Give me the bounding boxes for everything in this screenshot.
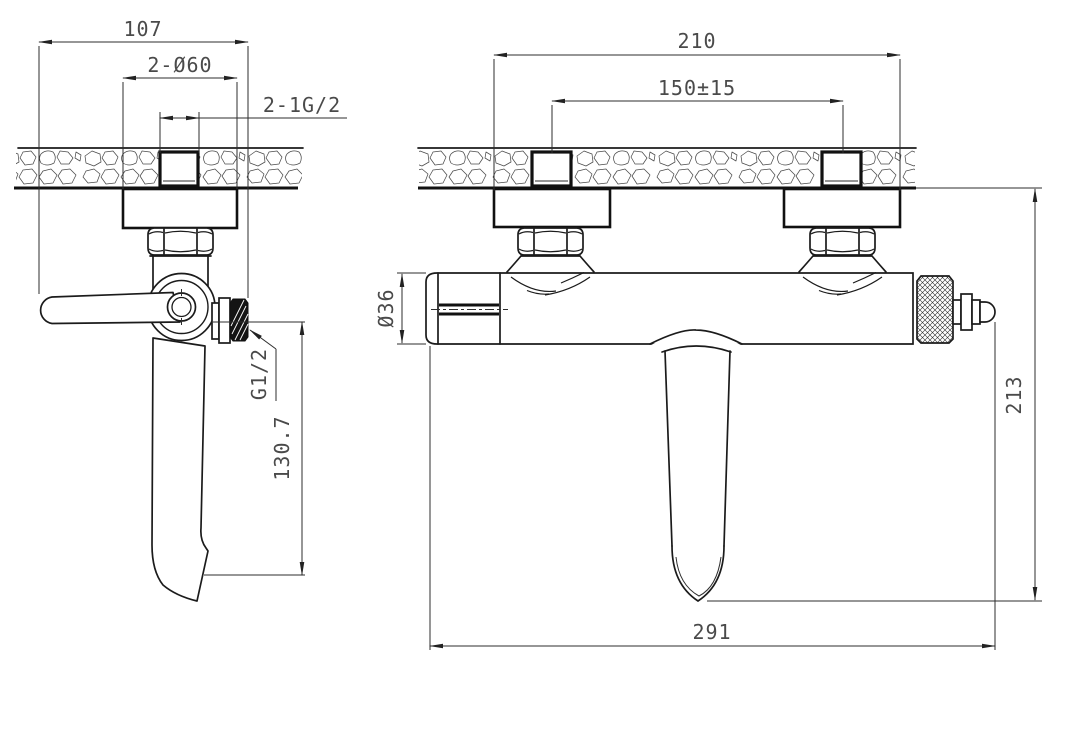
dim-inlet-spacing: 150±15: [658, 76, 736, 100]
union-nut-front-left: [518, 228, 583, 255]
faucet-front-view: [426, 189, 995, 601]
dim-overall-length: 291: [692, 620, 731, 644]
spout-side: [152, 338, 208, 601]
nozzle-tip: [980, 302, 995, 322]
spout-front: [650, 330, 742, 601]
dim-spout-drop-height: 130.7: [270, 415, 294, 480]
dim-inlet-thread: 2-1G/2: [263, 93, 341, 117]
dim-outlet-thread: G1/2: [247, 348, 271, 400]
union-nut-side: [148, 228, 213, 255]
valve-stem-inner: [172, 298, 191, 317]
technical-drawing-page: 107 2-Ø60 2-1G/2 G1/2 130.7 210 150±15: [0, 0, 1082, 749]
dim-escutcheon-span: 210: [677, 29, 716, 53]
union-nut-front-right: [810, 228, 875, 255]
dim-escutcheon-diameter: 2-Ø60: [147, 53, 212, 77]
pipe-socket-front-left: [532, 152, 571, 186]
pipe-socket-front-right: [822, 152, 861, 186]
pipe-socket-side-view: [160, 152, 198, 186]
faucet-technical-drawing: 107 2-Ø60 2-1G/2 G1/2 130.7 210 150±15: [0, 0, 1082, 749]
dim-overall-projection: 107: [123, 17, 162, 41]
dim-body-diameter: Ø36: [374, 288, 398, 327]
lever-handle: [41, 293, 180, 324]
faucet-side-view: [41, 189, 248, 601]
knurled-cap-front: [917, 276, 953, 343]
dim-overall-height: 213: [1002, 375, 1026, 414]
escutcheon-side: [123, 189, 237, 228]
escutcheon-front-left: [494, 189, 610, 227]
escutcheon-front-right: [784, 189, 900, 227]
mixer-body: [426, 273, 913, 344]
